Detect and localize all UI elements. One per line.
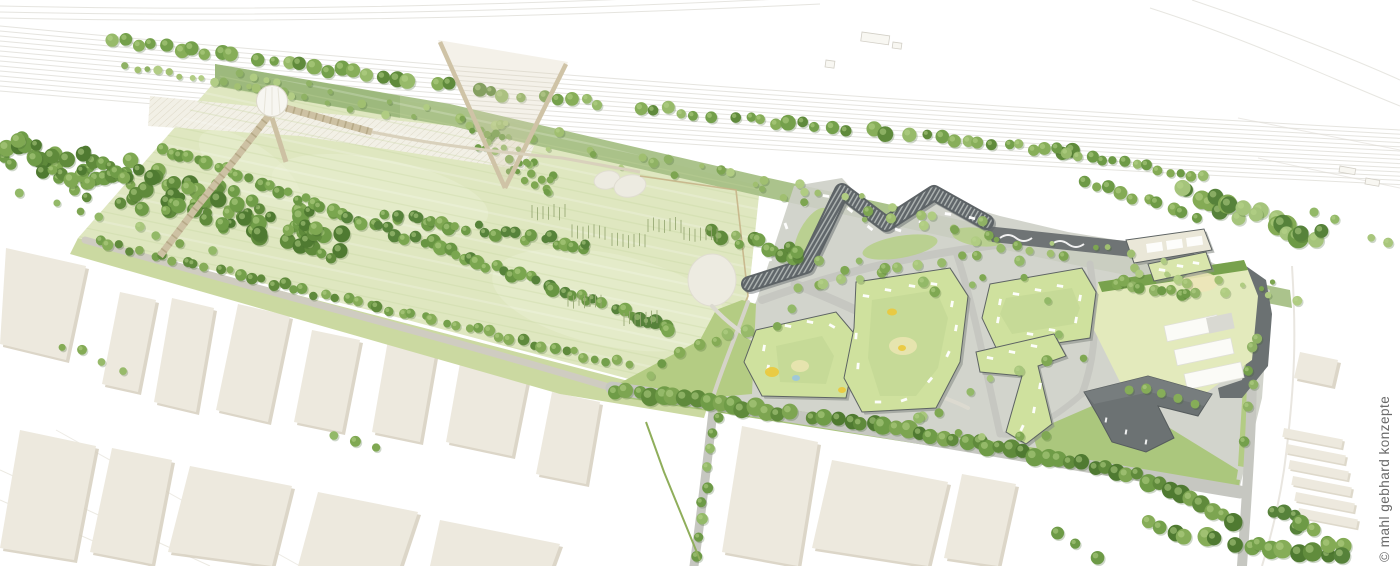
annotations: © mahl gebhard konzepte: [1377, 396, 1392, 562]
tree-row-se-pair: [1051, 527, 1106, 566]
masterplan-figure: © mahl gebhard konzepte: [0, 0, 1400, 566]
tree-row-context-lone: [329, 431, 381, 453]
site-plan-svg: © mahl gebhard konzepte: [0, 0, 1400, 566]
copyright-text: © mahl gebhard konzepte: [1377, 396, 1392, 562]
tree-row-west-street-row: [691, 413, 725, 564]
